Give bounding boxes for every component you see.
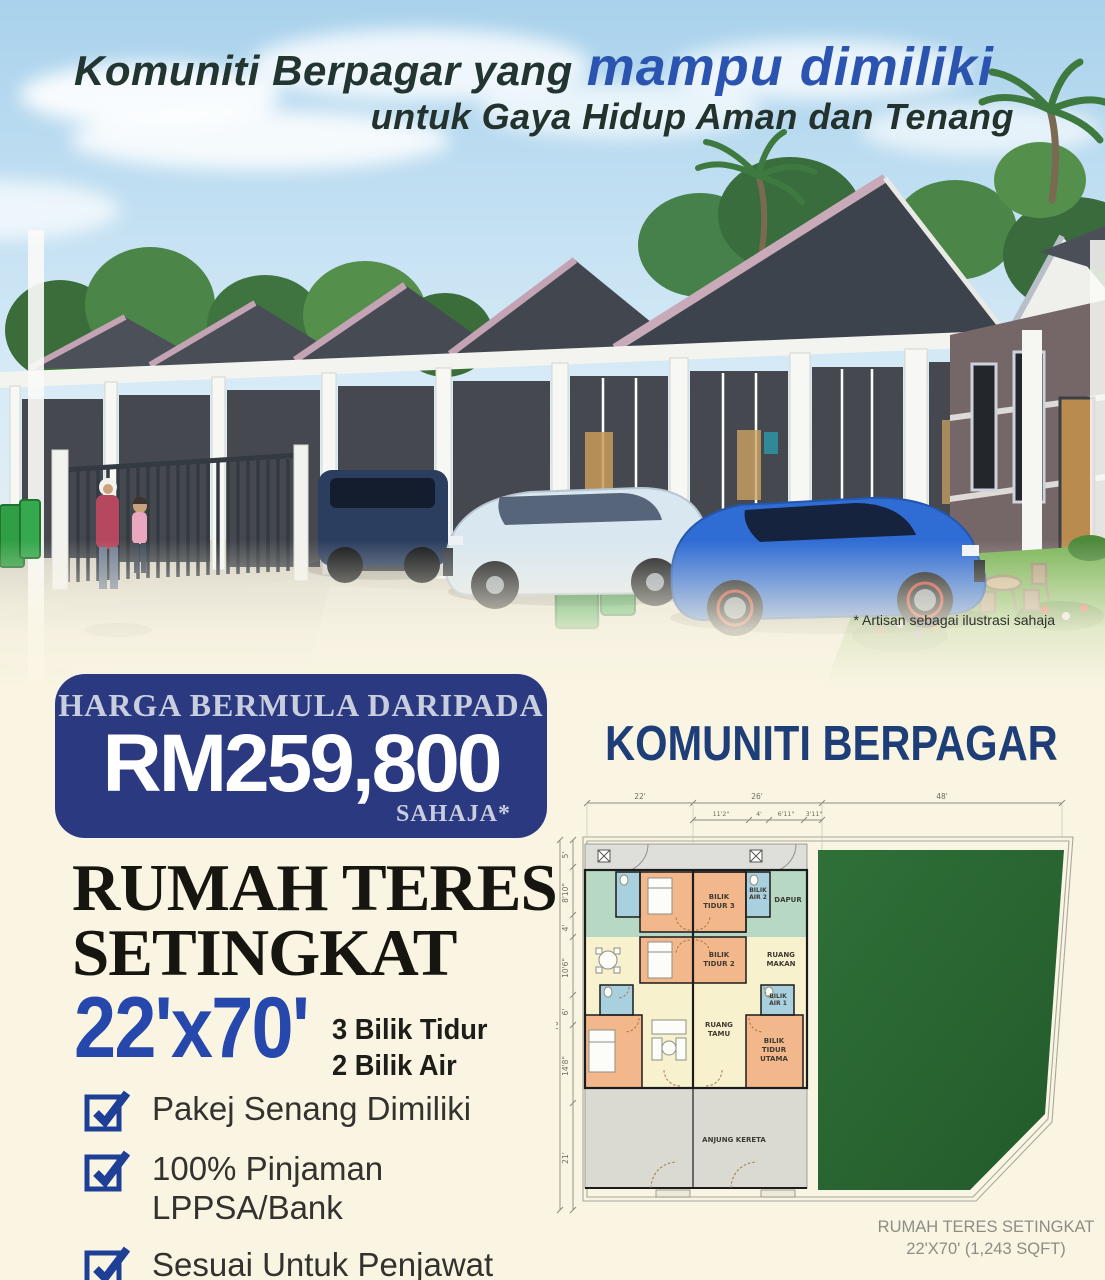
svg-text:DAPUR: DAPUR	[774, 896, 802, 904]
plan-caption: RUMAH TERES SETINGKAT 22'X70' (1,243 SQF…	[866, 1216, 1105, 1261]
hero-section: Komuniti Berpagar yangmampu dimiliki unt…	[0, 0, 1105, 700]
svg-text:TAMU: TAMU	[708, 1030, 731, 1038]
svg-text:MAKAN: MAKAN	[766, 960, 795, 968]
headline-line2: untuk Gaya Hidup Aman dan Tenang	[0, 96, 1014, 138]
plan-caption-line2: 22'X70' (1,243 SQFT)	[866, 1238, 1105, 1260]
checklist-item: 100% Pinjaman LPPSA/Bank	[84, 1146, 584, 1228]
headline-line1: Komuniti Berpagar yangmampu dimiliki	[74, 36, 994, 98]
svg-text:BILIK: BILIK	[709, 951, 730, 959]
svg-text:RUANG: RUANG	[767, 951, 795, 959]
carport-area	[585, 1088, 807, 1188]
check-icon	[84, 1086, 130, 1132]
svg-text:TIDUR 3: TIDUR 3	[703, 902, 735, 910]
svg-text:48': 48'	[936, 792, 948, 801]
svg-text:BILIK: BILIK	[749, 887, 767, 894]
house-specs: 3 Bilik Tidur 2 Bilik Air	[332, 990, 488, 1085]
svg-text:14'8": 14'8"	[561, 1056, 570, 1076]
size-row: 22'x70' 3 Bilik Tidur 2 Bilik Air	[74, 990, 498, 1085]
entry-step	[656, 1190, 690, 1197]
svg-text:22': 22'	[634, 792, 646, 801]
product-title-line2: SETINGKAT	[72, 921, 557, 986]
svg-text:BILIK: BILIK	[709, 893, 730, 901]
check-icon	[84, 1146, 130, 1192]
floor-plan-figure: BILIK TIDUR 3 BILIK AIR 2 DAPUR BILIK TI…	[556, 780, 1086, 1240]
svg-text:3'11": 3'11"	[806, 811, 823, 818]
dimension-lines-left: 5' 8'10" 4' 10'6" 6' 14'8" 21' 70'	[556, 837, 576, 1213]
floor-plan-drawing: BILIK TIDUR 3 BILIK AIR 2 DAPUR BILIK TI…	[556, 780, 1086, 1240]
product-title: RUMAH TERES SETINGKAT	[72, 856, 557, 986]
svg-text:UTAMA: UTAMA	[760, 1055, 788, 1063]
svg-text:AIR 1: AIR 1	[769, 1000, 787, 1007]
checklist-item: Pakej Senang Dimiliki	[84, 1086, 584, 1132]
svg-text:21': 21'	[561, 1152, 570, 1164]
spec-bedrooms: 3 Bilik Tidur	[332, 1012, 488, 1048]
svg-text:11'2": 11'2"	[713, 811, 730, 818]
plan-caption-line1: RUMAH TERES SETINGKAT	[866, 1216, 1105, 1238]
price-badge: HARGA BERMULA DARIPADA RM259,800 SAHAJA*	[55, 674, 547, 838]
check-icon	[84, 1242, 130, 1280]
entry-step	[761, 1190, 795, 1197]
benefits-checklist: Pakej Senang Dimiliki 100% Pinjaman LPPS…	[84, 1086, 584, 1280]
house-size: 22'x70'	[74, 990, 308, 1067]
svg-text:BILIK: BILIK	[764, 1037, 785, 1045]
svg-text:6': 6'	[561, 1009, 570, 1016]
checklist-label: Sesuai Untuk Penjawat Awam & Swasta	[152, 1242, 582, 1280]
checklist-item: Sesuai Untuk Penjawat Awam & Swasta	[84, 1242, 584, 1280]
svg-text:26': 26'	[751, 792, 763, 801]
svg-text:RUANG: RUANG	[705, 1021, 733, 1029]
checklist-label: Pakej Senang Dimiliki	[152, 1086, 471, 1129]
lawn-area	[818, 850, 1064, 1190]
svg-text:TIDUR 2: TIDUR 2	[703, 960, 735, 968]
svg-text:BILIK: BILIK	[769, 993, 787, 1000]
svg-text:AIR 2: AIR 2	[749, 894, 767, 901]
svg-text:ANJUNG KERETA: ANJUNG KERETA	[702, 1136, 766, 1144]
svg-text:6'11": 6'11"	[778, 811, 795, 818]
spec-bathrooms: 2 Bilik Air	[332, 1048, 488, 1084]
property-flyer: Komuniti Berpagar yangmampu dimiliki unt…	[0, 0, 1105, 1280]
artist-disclaimer: * Artisan sebagai ilustrasi sahaja	[853, 612, 1055, 628]
svg-text:4': 4'	[561, 925, 570, 932]
svg-text:10'6": 10'6"	[561, 958, 570, 978]
back-porch	[585, 844, 807, 870]
svg-text:70': 70'	[556, 1019, 560, 1031]
svg-text:8'10": 8'10"	[561, 883, 570, 903]
headline-part2: mampu dimiliki	[587, 37, 994, 97]
checklist-label: 100% Pinjaman LPPSA/Bank	[152, 1146, 582, 1228]
svg-text:4': 4'	[756, 811, 762, 818]
headline-part1: Komuniti Berpagar yang	[74, 47, 573, 94]
svg-text:TIDUR: TIDUR	[762, 1046, 787, 1054]
price-value: RM259,800	[55, 726, 547, 801]
section-title: KOMUNITI BERPAGAR	[605, 716, 1047, 772]
product-title-line1: RUMAH TERES	[72, 856, 557, 921]
svg-text:5': 5'	[561, 852, 570, 859]
